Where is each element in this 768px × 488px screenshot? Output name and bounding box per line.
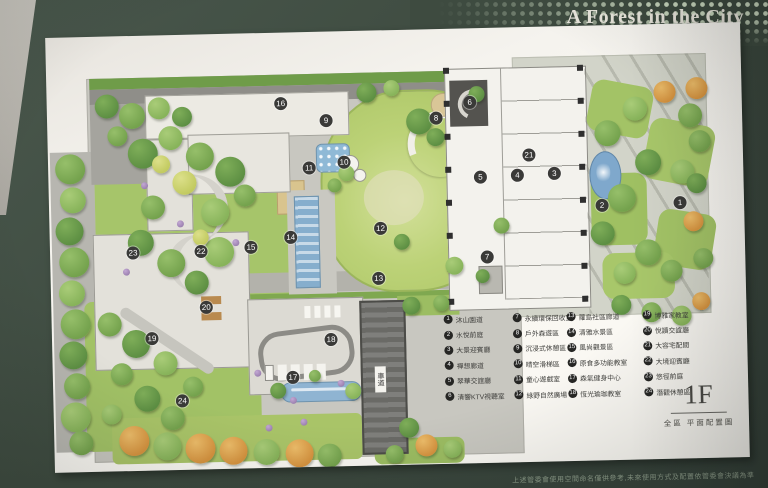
- legend-label: 森氣健身中心: [580, 372, 621, 383]
- legend-item-19: 19博雅家教室: [642, 306, 688, 322]
- legend-number-badge: 15: [567, 343, 576, 352]
- floor-caption: 全區 平面配置圖: [654, 416, 744, 429]
- legend-label: 童心遊戲室: [526, 374, 560, 385]
- legend-label: 蘿島社區廊道: [579, 311, 620, 322]
- legend-item-11: 11童心遊戲室: [514, 371, 574, 388]
- legend-item-14: 14清雅水景區: [567, 323, 627, 340]
- legend-number-badge: 23: [644, 372, 653, 381]
- legend-number-badge: 19: [642, 310, 651, 319]
- gym-equipment-row: [265, 365, 274, 381]
- disclaimer-text: 上述管委會使用空間命名僅供參考,未來使用方式及配置依管委會決議為準: [511, 470, 754, 485]
- brochure-page: 車道 1沐山園道2水悅前庭3大景迎賓廳4禪想廊道5翠華交誼廳6清響KTV視聽室 …: [45, 22, 750, 473]
- legend-label: 清雅水景區: [579, 326, 613, 337]
- legend-number-badge: 17: [568, 374, 577, 383]
- structure-columns: [443, 68, 449, 74]
- legend-item-10: 10晴空滑梯區: [514, 355, 574, 372]
- driveway-sign: 車道: [375, 366, 387, 392]
- legend-label: 大境迎賓廳: [656, 355, 690, 366]
- legend-item-4: 4禪想廊道: [445, 357, 505, 374]
- legend-number-badge: 12: [514, 390, 523, 399]
- legend-label: 恆光瑜珈教室: [580, 388, 621, 399]
- legend-column-1: 1沐山園道2水悅前庭3大景迎賓廳4禪想廊道5翠華交誼廳6清響KTV視聽室: [443, 311, 504, 405]
- floor-label: 1F: [653, 378, 744, 411]
- floor-rule: [671, 412, 727, 414]
- legend-label: 翠華交誼廳: [457, 375, 491, 386]
- legend-label: 清響KTV視聽室: [457, 390, 504, 401]
- legend-item-17: 17森氣健身中心: [568, 369, 628, 386]
- background-table-edge: [0, 0, 42, 215]
- tree: [253, 439, 280, 466]
- legend-label: 風尚觀景區: [579, 342, 613, 353]
- legend-item-3: 3大景迎賓廳: [444, 341, 504, 358]
- legend-label: 悅讀交誼廳: [655, 324, 689, 335]
- legend-number-badge: 1: [444, 315, 453, 324]
- legend-item-12: 12綠野自然廣場: [514, 386, 574, 403]
- legend-number-badge: 4: [445, 361, 454, 370]
- legend-number-badge: 24: [644, 387, 653, 396]
- legend-item-22: 22大境迎賓廳: [643, 353, 689, 369]
- flower-bush: [232, 239, 239, 246]
- legend-item-13: 13蘿島社區廊道: [566, 308, 626, 325]
- legend-number-badge: 2: [444, 330, 453, 339]
- legend-number-badge: 22: [644, 357, 653, 366]
- legend-number-badge: 8: [513, 329, 522, 338]
- legend-label: 大容宅配間: [655, 340, 689, 351]
- legend-label: 禪想廊道: [457, 360, 484, 371]
- tree: [285, 439, 314, 468]
- legend-item-5: 5翠華交誼廳: [445, 372, 505, 389]
- legend-label: 沉浸式休憩區: [525, 343, 566, 354]
- legend-label: 大景迎賓廳: [456, 344, 490, 355]
- legend-number-badge: 18: [568, 389, 577, 398]
- legend-number-badge: 20: [643, 326, 652, 335]
- legend-item-9: 9沉浸式休憩區: [513, 340, 573, 357]
- legend-label: 永續環保回收室: [525, 312, 573, 323]
- flower-bush: [290, 397, 297, 404]
- residential-units: [500, 67, 589, 300]
- legend-label: 沐山園道: [456, 314, 483, 325]
- legend-item-8: 8戶外森遊區: [513, 324, 573, 341]
- legend-number-badge: 11: [514, 375, 523, 384]
- legend-label: 戶外森遊區: [525, 327, 559, 338]
- legend-label: 水悅前庭: [456, 329, 483, 340]
- legend-column-3: 13蘿島社區廊道14清雅水景區15風尚觀景區16原食多功能教室17森氣健身中心1…: [566, 308, 628, 402]
- legend-item-21: 21大容宅配間: [643, 337, 689, 353]
- legend-number-badge: 10: [514, 360, 523, 369]
- legend-item-7: 7永續環保回收室: [512, 309, 572, 326]
- pond-swirl: [596, 161, 610, 183]
- legend-number-badge: 14: [567, 328, 576, 337]
- legend-item-2: 2水悅前庭: [444, 326, 504, 343]
- legend-item-15: 15風尚觀景區: [567, 339, 627, 356]
- legend-number-badge: 16: [568, 358, 577, 367]
- legend-number-badge: 5: [445, 377, 454, 386]
- legend-label: 綠野自然廣場: [526, 389, 567, 400]
- photo-of-brochure: { "cover": { "title": "A Forest in the C…: [0, 0, 768, 488]
- legend-item-20: 20悅讀交誼廳: [643, 322, 689, 338]
- legend-item-18: 18恆光瑜珈教室: [568, 385, 628, 402]
- legend-number-badge: 13: [567, 312, 576, 321]
- legend-number-badge: 3: [444, 346, 453, 355]
- legend-column-2: 7永續環保回收室8戶外森遊區9沉浸式休憩區10晴空滑梯區11童心遊戲室12綠野自…: [512, 309, 574, 403]
- yoga-mats: [304, 306, 310, 318]
- tree: [317, 443, 342, 468]
- legend-number-badge: 9: [513, 344, 522, 353]
- legend-item-1: 1沐山園道: [443, 311, 503, 328]
- legend-item-16: 16原食多功能教室: [567, 354, 627, 371]
- waterfall-pool: [294, 196, 321, 289]
- legend-number-badge: 6: [445, 392, 454, 401]
- legend-number-badge: 7: [513, 313, 522, 322]
- legend-number-badge: 21: [643, 341, 652, 350]
- legend-item-6: 6清響KTV視聽室: [445, 388, 505, 405]
- legend-label: 原食多功能教室: [580, 357, 628, 368]
- legend-label: 博雅家教室: [654, 309, 688, 320]
- legend-label: 晴空滑梯區: [526, 358, 560, 369]
